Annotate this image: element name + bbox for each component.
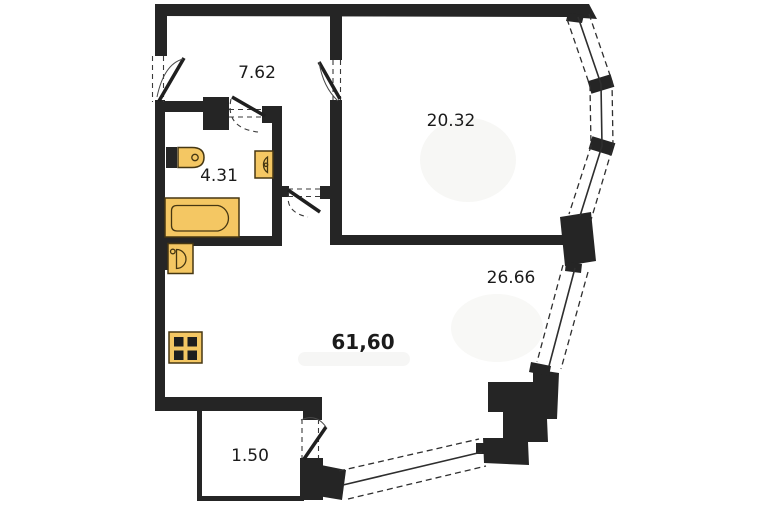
- window-glazing-line: [343, 452, 482, 485]
- door-leaf: [288, 190, 320, 212]
- wall-left-lower: [155, 246, 165, 411]
- toilet-tank: [166, 147, 177, 168]
- balcony-wall-left: [197, 411, 202, 501]
- toilet-icon: [166, 147, 204, 168]
- bathroom-right-wall: [272, 112, 282, 246]
- balcony-door-bottom-block: [300, 458, 323, 500]
- bathroom-area-label: 4.31: [200, 166, 238, 186]
- floor-plan-canvas: 7.62 20.32 4.31 26.66 61,60 1.50: [0, 0, 770, 510]
- hallway-living-door: [288, 189, 320, 217]
- walls: [155, 4, 615, 501]
- room-divider-wall: [330, 235, 563, 245]
- living-area-label: 26.66: [487, 268, 536, 288]
- window-nub-mid-lower: [529, 362, 551, 376]
- sink-body: [168, 244, 193, 274]
- total-area-label: 61,60: [331, 330, 394, 354]
- balcony-wall-bottom: [197, 496, 304, 501]
- window-band-bottom: [339, 439, 486, 499]
- stove-burner: [188, 337, 198, 347]
- hallway-area-label: 7.62: [238, 63, 276, 83]
- stove-burner: [188, 351, 198, 361]
- balcony-door: [301, 418, 326, 459]
- balcony-area-label: 1.50: [231, 446, 269, 466]
- room-wall-vertical-lower: [330, 100, 342, 245]
- door-leaf: [232, 97, 265, 116]
- window-face-inner: [339, 439, 479, 471]
- bathroom-sink-icon: [255, 151, 273, 178]
- artifact-smudge: [298, 352, 410, 366]
- stove-burner: [174, 337, 184, 347]
- wall-left-upper: [155, 4, 167, 56]
- wall-left-middle: [155, 100, 165, 246]
- door-leaf: [304, 427, 326, 459]
- zigzag-wall-bottom-right: [483, 369, 559, 465]
- bathtub-icon: [165, 198, 239, 237]
- toilet-bowl: [178, 148, 204, 168]
- window-band-right-lower: [537, 265, 588, 369]
- wall-top: [155, 4, 597, 19]
- window-junction-block: [560, 212, 596, 266]
- kitchen-sink-icon: [165, 244, 193, 274]
- window-face-outer: [348, 466, 486, 499]
- left-wall-window-opening: [153, 56, 185, 102]
- bathroom-pier: [203, 97, 229, 130]
- room-top-right-door: [319, 60, 341, 101]
- room-top-right-area-label: 20.32: [427, 111, 476, 131]
- door-leaf: [319, 62, 340, 99]
- bathroom-top-wall: [163, 101, 205, 112]
- room-wall-vertical-upper: [330, 14, 342, 60]
- wall-bottom: [155, 397, 322, 411]
- stove-icon: [169, 332, 202, 363]
- stove-body: [169, 332, 202, 363]
- window-glazing-line: [549, 268, 575, 366]
- bathroom-door: [229, 97, 265, 132]
- window-face-outer: [561, 272, 588, 369]
- stove-burner: [174, 351, 184, 361]
- floor-plan-svg: 7.62 20.32 4.31 26.66 61,60 1.50: [0, 0, 770, 510]
- window-face-inner: [537, 265, 563, 362]
- artifact-smudge: [451, 294, 543, 362]
- window-band-right-upper: [567, 14, 613, 220]
- window-face-inner: [567, 19, 591, 214]
